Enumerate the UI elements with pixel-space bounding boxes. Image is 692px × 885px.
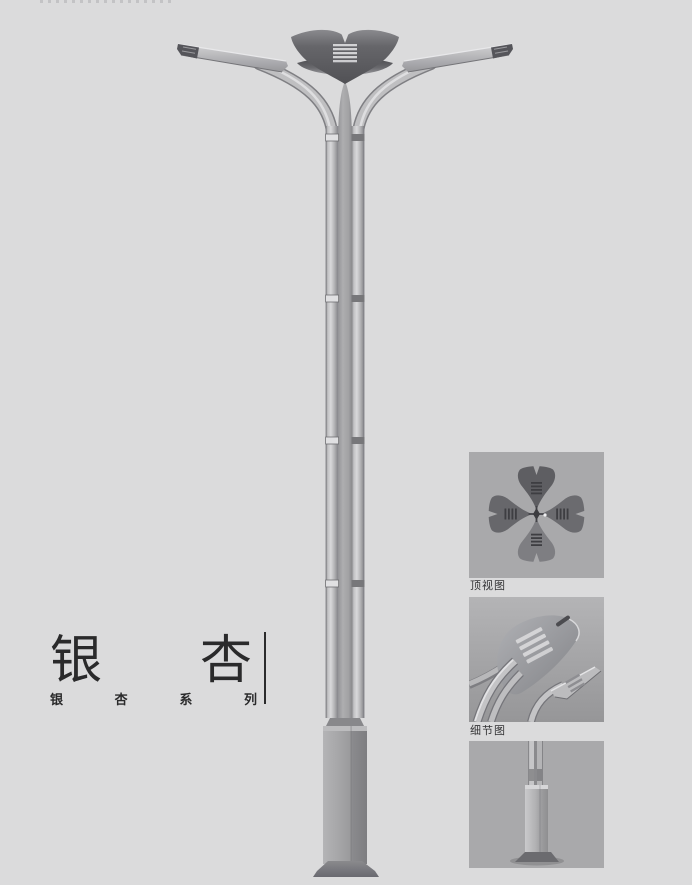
title-divider-bar (264, 632, 266, 704)
top-view-panel (469, 452, 604, 578)
left-arm (257, 62, 333, 141)
left-lamp-head (177, 44, 288, 72)
title-char-left: 银 (50, 633, 102, 689)
series-label: 银 杏 系 列 (50, 692, 257, 708)
product-title: 银 杏 (50, 633, 252, 693)
base-view-panel (469, 741, 604, 868)
left-lamp-tip (177, 44, 199, 59)
series-char: 杏 (115, 692, 128, 708)
top-view-caption: 顶视图 (470, 579, 605, 593)
right-lamp-tip (491, 44, 513, 59)
base-view-image (469, 741, 604, 868)
series-char: 银 (50, 692, 63, 708)
series-char: 列 (244, 692, 257, 708)
right-arm (357, 62, 433, 141)
detail-view-panel (469, 597, 604, 722)
pole (326, 126, 365, 718)
base-view-tubes (528, 741, 543, 787)
detail-view-image (469, 597, 604, 722)
title-char-right: 杏 (200, 633, 252, 689)
base-column (323, 718, 367, 864)
series-char: 系 (179, 692, 192, 708)
right-lamp-head (402, 44, 513, 72)
detail-view-caption: 细节图 (470, 724, 605, 738)
top-view-image (469, 452, 604, 578)
base-plate (313, 861, 379, 877)
crown-leaf (291, 30, 399, 84)
